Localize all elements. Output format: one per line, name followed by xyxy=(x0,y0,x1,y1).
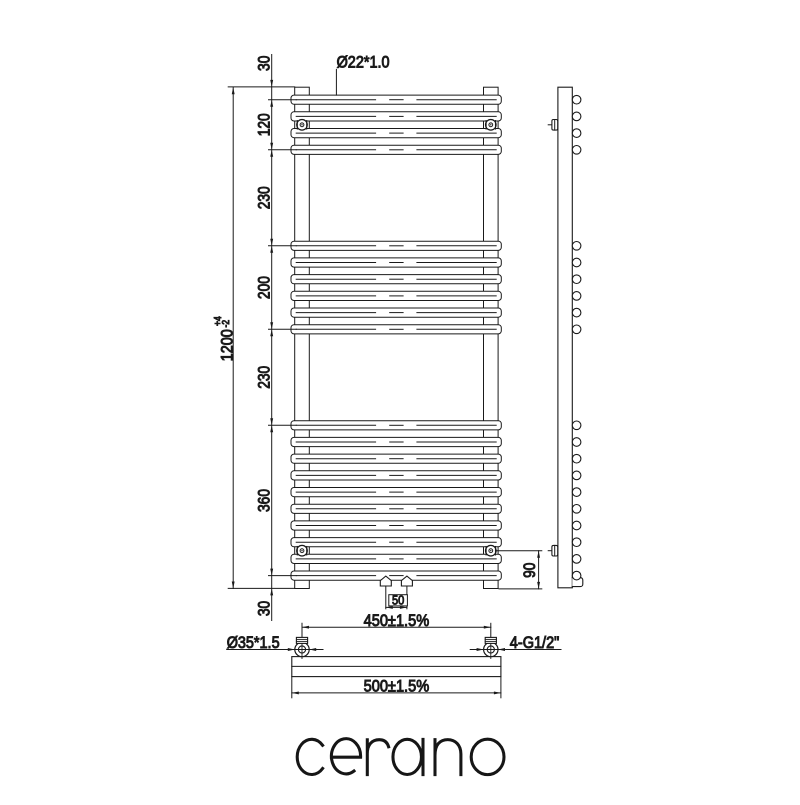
svg-text:30: 30 xyxy=(256,56,274,71)
svg-text:360: 360 xyxy=(256,489,274,512)
svg-text:230: 230 xyxy=(256,366,274,389)
svg-text:1200: 1200 xyxy=(219,329,237,361)
svg-text:450±1.5%: 450±1.5% xyxy=(364,612,430,630)
svg-text:50: 50 xyxy=(392,593,404,608)
svg-text:230: 230 xyxy=(256,186,274,209)
svg-text:200: 200 xyxy=(256,276,274,299)
svg-text:Ø22*1.0: Ø22*1.0 xyxy=(337,53,390,71)
svg-text:120: 120 xyxy=(256,113,274,136)
svg-text:-2: -2 xyxy=(221,320,232,328)
svg-text:500±1.5%: 500±1.5% xyxy=(364,678,430,696)
svg-text:30: 30 xyxy=(256,601,274,616)
svg-text:90: 90 xyxy=(521,563,539,578)
